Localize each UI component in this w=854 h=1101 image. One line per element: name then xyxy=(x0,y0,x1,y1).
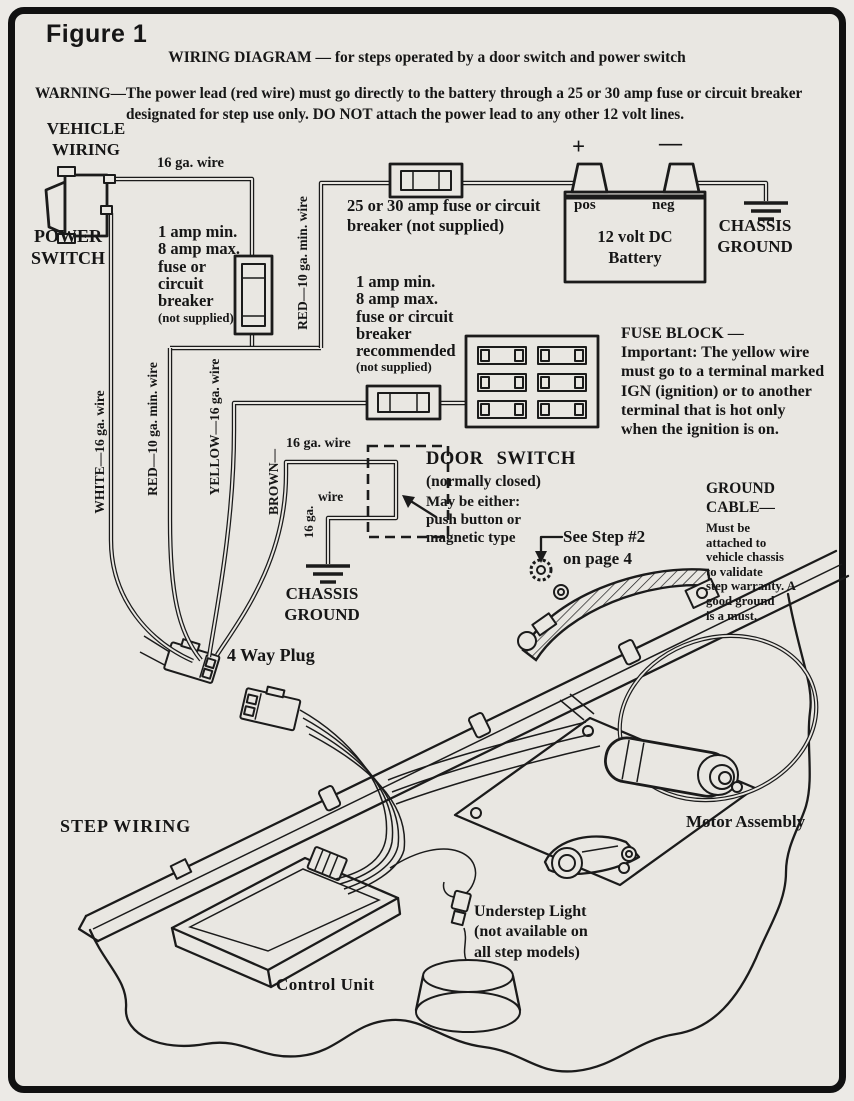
vehicle-wiring-heading: VEHICLE WIRING xyxy=(30,119,142,160)
battery-label: 12 volt DC Battery xyxy=(565,227,705,268)
wire-label-brown: BROWN— xyxy=(266,449,282,515)
inline-fuse-2-note: (not supplied) xyxy=(356,360,432,375)
main-fuse-label: 25 or 30 amp fuse or circuit breaker (no… xyxy=(347,196,540,236)
inline-fuse-1-symbol xyxy=(235,256,272,334)
warning-text-line2: designated for step use only. DO NOT att… xyxy=(126,106,684,124)
inline-fuse-1-label: 1 amp min. 8 amp max. fuse or circuit br… xyxy=(158,223,240,310)
chassis-ground-battery-label: CHASSIS GROUND xyxy=(698,216,812,257)
figure-label: Figure 1 xyxy=(46,20,147,49)
see-step-arrow xyxy=(535,537,562,563)
figure-page: .wo{stroke:#1b1b1b;stroke-width:4.4;fill… xyxy=(0,0,854,1101)
ground-cable-title: GROUND CABLE— xyxy=(706,480,775,518)
wire-label-red: RED—10 ga. min. wire xyxy=(145,362,161,496)
motor-assembly-label: Motor Assembly xyxy=(686,812,805,832)
step-wiring-heading: STEP WIRING xyxy=(60,816,191,837)
wire-label-white: WHITE—16 ga. wire xyxy=(92,390,108,513)
control-unit-label: Control Unit xyxy=(276,975,375,995)
chassis-ground-door-label: CHASSIS GROUND xyxy=(266,584,378,625)
door-switch-title: DOOR SWITCH xyxy=(426,449,576,470)
power-switch-label: POWER SWITCH xyxy=(14,226,122,270)
door-switch-feed-wire-label: 16 ga. wire xyxy=(286,436,351,452)
diagram-title: WIRING DIAGRAM — for steps operated by a… xyxy=(77,49,777,67)
inline-fuse-2-symbol xyxy=(367,386,440,419)
motor-assembly-drawing xyxy=(455,611,838,885)
understep-light-label: Understep Light (not available on all st… xyxy=(474,902,588,963)
door-ground-wire-gauge: 16 ga. xyxy=(301,506,317,539)
battery-neg-terminal-label: neg xyxy=(652,197,675,214)
door-ground-wire-word: wire xyxy=(318,489,343,505)
battery-plus-sign: + xyxy=(572,134,585,160)
warning-text-line1: WARNING—The power lead (red wire) must g… xyxy=(35,85,802,103)
door-switch-description: May be either: push button or magnetic t… xyxy=(426,493,521,547)
inline-fuse-1-note: (not supplied) xyxy=(158,311,234,326)
fuse-block-note: FUSE BLOCK — Important: The yellow wire … xyxy=(621,324,824,439)
ground-cable-description: Must be attached to vehicle chassis to v… xyxy=(706,521,796,623)
battery-minus-sign: — xyxy=(659,130,682,156)
main-fuse-symbol xyxy=(390,164,462,197)
see-step-note: See Step #2 on page 4 xyxy=(563,526,645,570)
four-way-plug-label: 4 Way Plug xyxy=(227,645,315,666)
door-switch-subtitle: (normally closed) xyxy=(426,473,541,491)
inline-fuse-2-label: 1 amp min. 8 amp max. fuse or circuit br… xyxy=(356,273,456,360)
wire-label-yellow: YELLOW—16 ga. wire xyxy=(207,359,223,496)
wire-label-red-vertical: RED—10 ga. min. wire xyxy=(295,196,311,330)
battery-pos-terminal-label: pos xyxy=(574,197,596,214)
door-ground-symbol xyxy=(306,566,350,582)
wire-label-16ga-top: 16 ga. wire xyxy=(157,155,224,172)
fuse-block-symbol xyxy=(466,336,598,427)
